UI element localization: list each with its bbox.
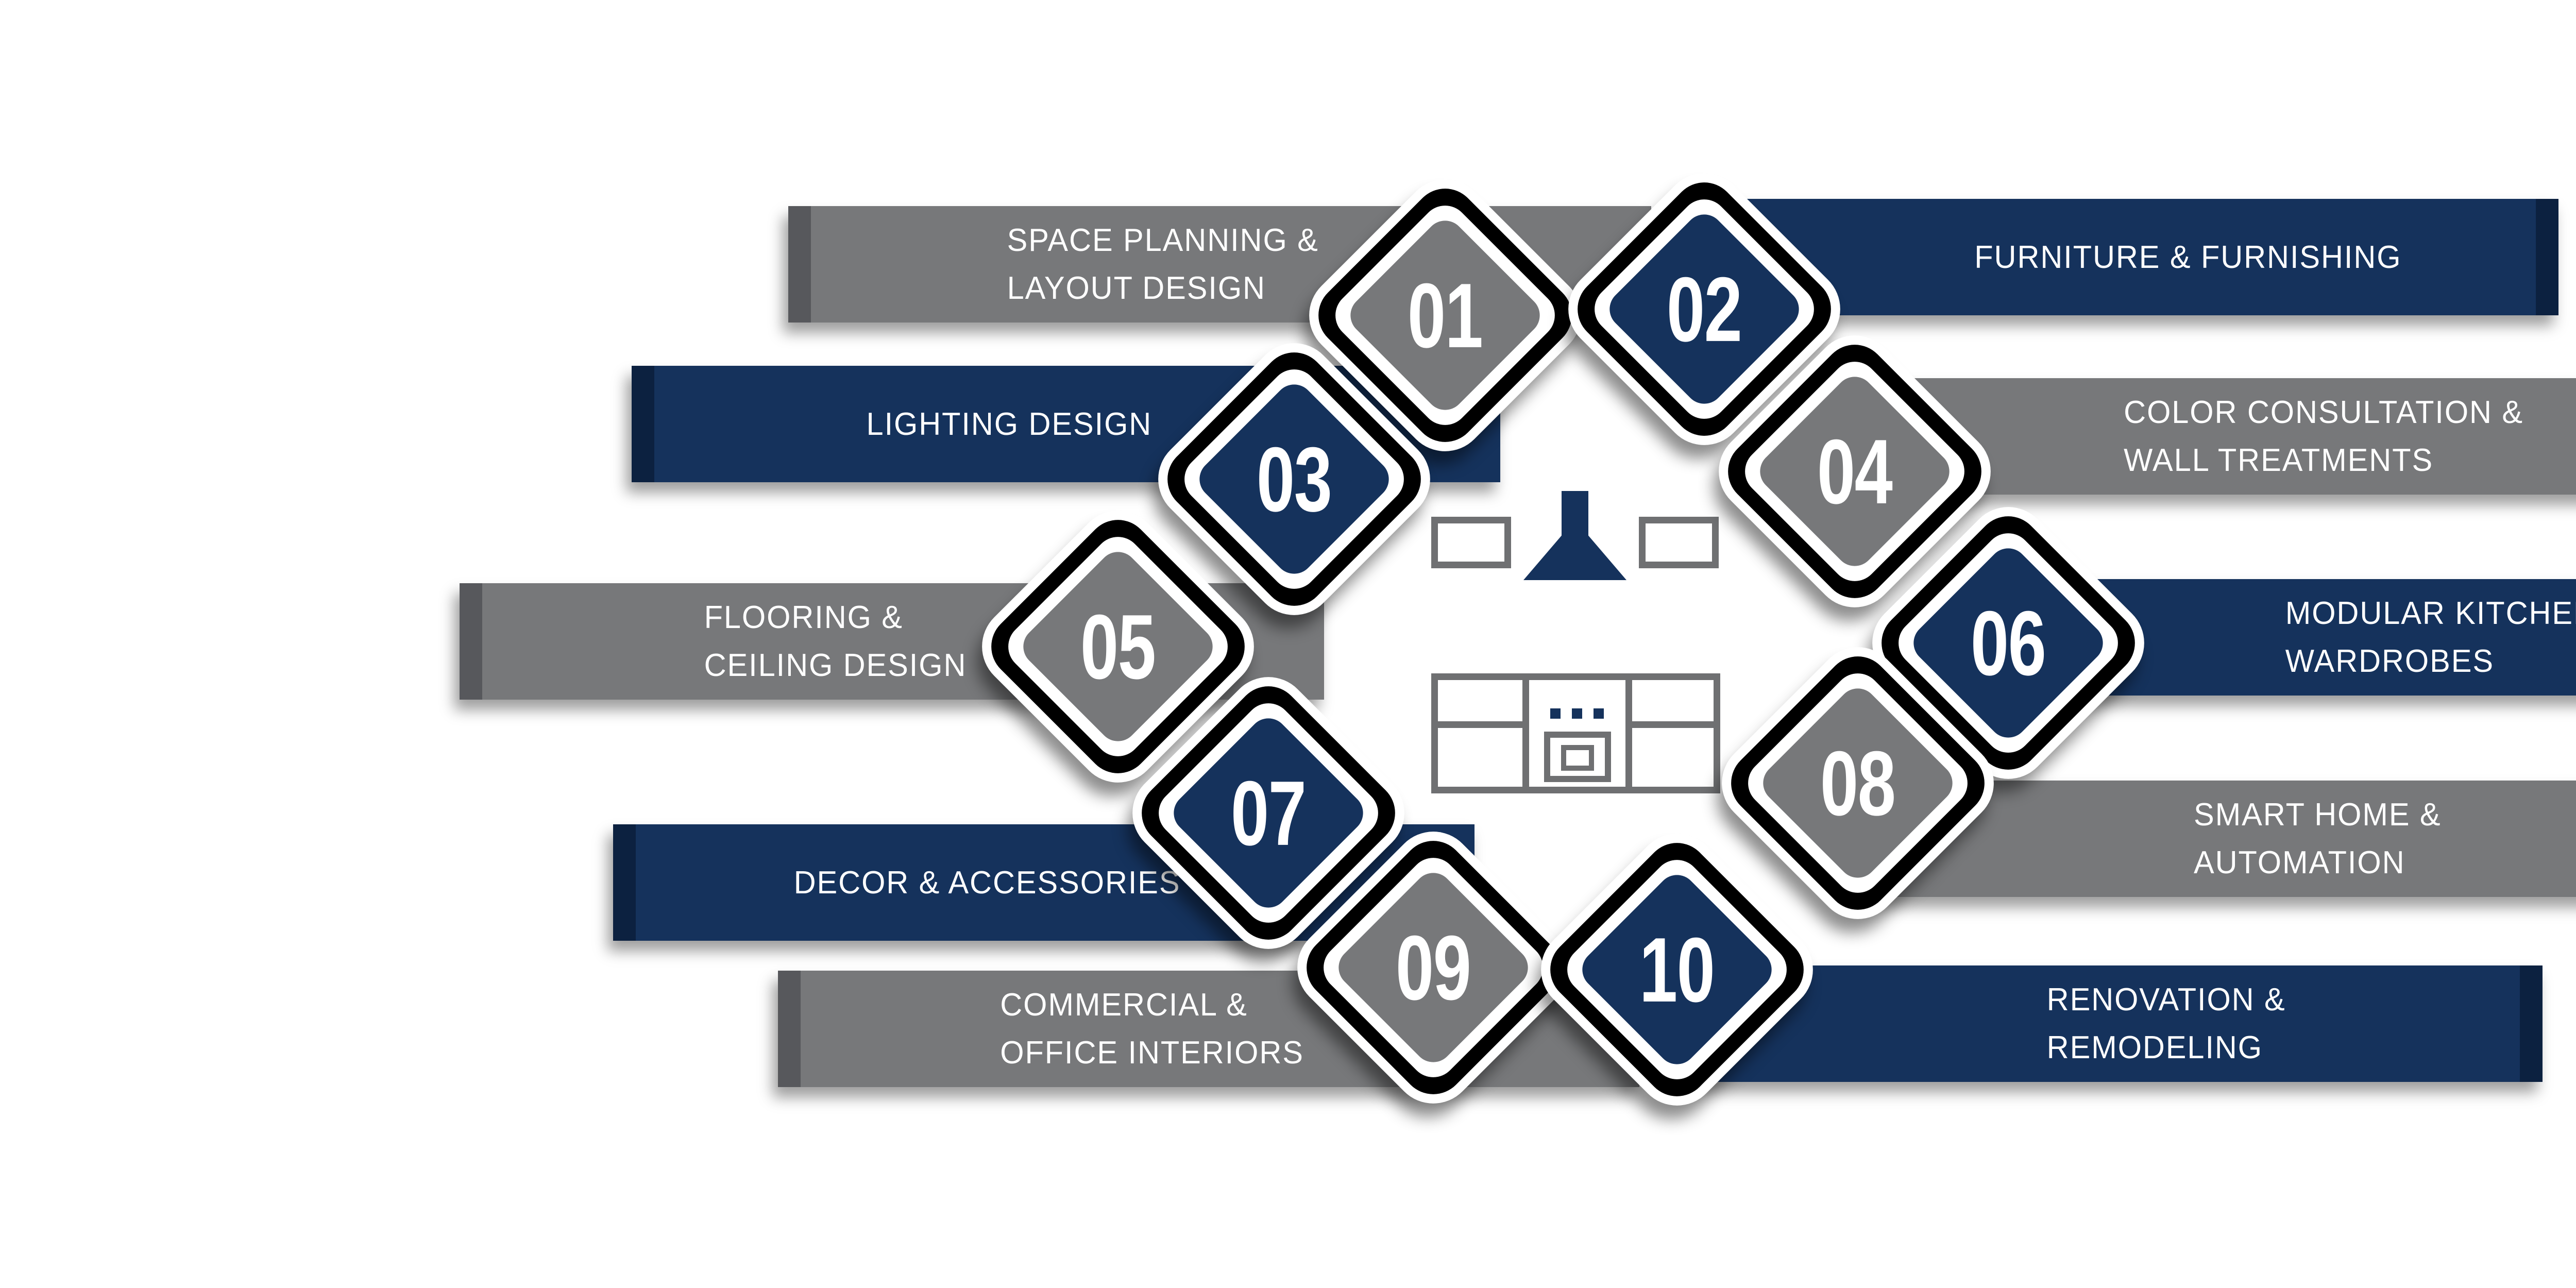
badge-04-number: 04 xyxy=(1817,419,1892,524)
banner-smart-home-label: SMART HOME & AUTOMATION xyxy=(2194,791,2442,887)
counter-divider-icon xyxy=(1625,680,1632,787)
drawer-divider-icon xyxy=(1438,721,1522,728)
oven-door-icon xyxy=(1544,732,1611,782)
kitchen-cabinet-right-icon xyxy=(1639,517,1719,568)
badge-09-number: 09 xyxy=(1396,915,1471,1021)
stove-knob-icon xyxy=(1594,708,1604,719)
banner-renovation: RENOVATION & REMODELING xyxy=(1677,965,2543,1082)
badge-05-number: 05 xyxy=(1080,594,1156,700)
kitchen-stove-hood-icon xyxy=(1431,491,1720,793)
stove-knob-icon xyxy=(1572,708,1582,719)
banner-modular-kitchens-label: MODULAR KITCHENS & WARDROBES xyxy=(2285,589,2576,685)
kitchen-hood-icon xyxy=(1523,491,1626,580)
banner-color-consultation-label: COLOR CONSULTATION & WALL TREATMENTS xyxy=(2124,388,2523,484)
badge-10-number: 10 xyxy=(1639,917,1715,1023)
banner-lighting-label: LIGHTING DESIGN xyxy=(867,400,1153,448)
badge-03-number: 03 xyxy=(1257,427,1332,532)
badge-07-number: 07 xyxy=(1231,760,1306,866)
badge-08-number: 08 xyxy=(1820,731,1895,836)
oven-window-icon xyxy=(1561,745,1594,771)
banner-furniture-label: FURNITURE & FURNISHING xyxy=(1974,233,2401,281)
kitchen-cabinet-left-icon xyxy=(1431,517,1511,568)
banner-decor-label: DECOR & ACCESSORIES xyxy=(794,859,1181,907)
infographic-root: SPACE PLANNING & LAYOUT DESIGN FURNITURE… xyxy=(0,0,2576,1288)
banner-space-planning-label: SPACE PLANNING & LAYOUT DESIGN xyxy=(1007,216,1319,312)
badge-02-number: 02 xyxy=(1667,257,1742,362)
banner-renovation-label: RENOVATION & REMODELING xyxy=(2047,976,2286,1072)
stove-knob-icon xyxy=(1550,708,1561,719)
drawer-divider-icon xyxy=(1632,721,1714,728)
banner-commercial-label: COMMERCIAL & OFFICE INTERIORS xyxy=(1000,981,1304,1077)
badge-06-number: 06 xyxy=(1971,590,2046,696)
counter-divider-icon xyxy=(1522,680,1529,787)
badge-01-number: 01 xyxy=(1408,263,1483,368)
banner-flooring-label: FLOORING & CEILING DESIGN xyxy=(704,594,967,689)
kitchen-counter-icon xyxy=(1431,673,1720,793)
